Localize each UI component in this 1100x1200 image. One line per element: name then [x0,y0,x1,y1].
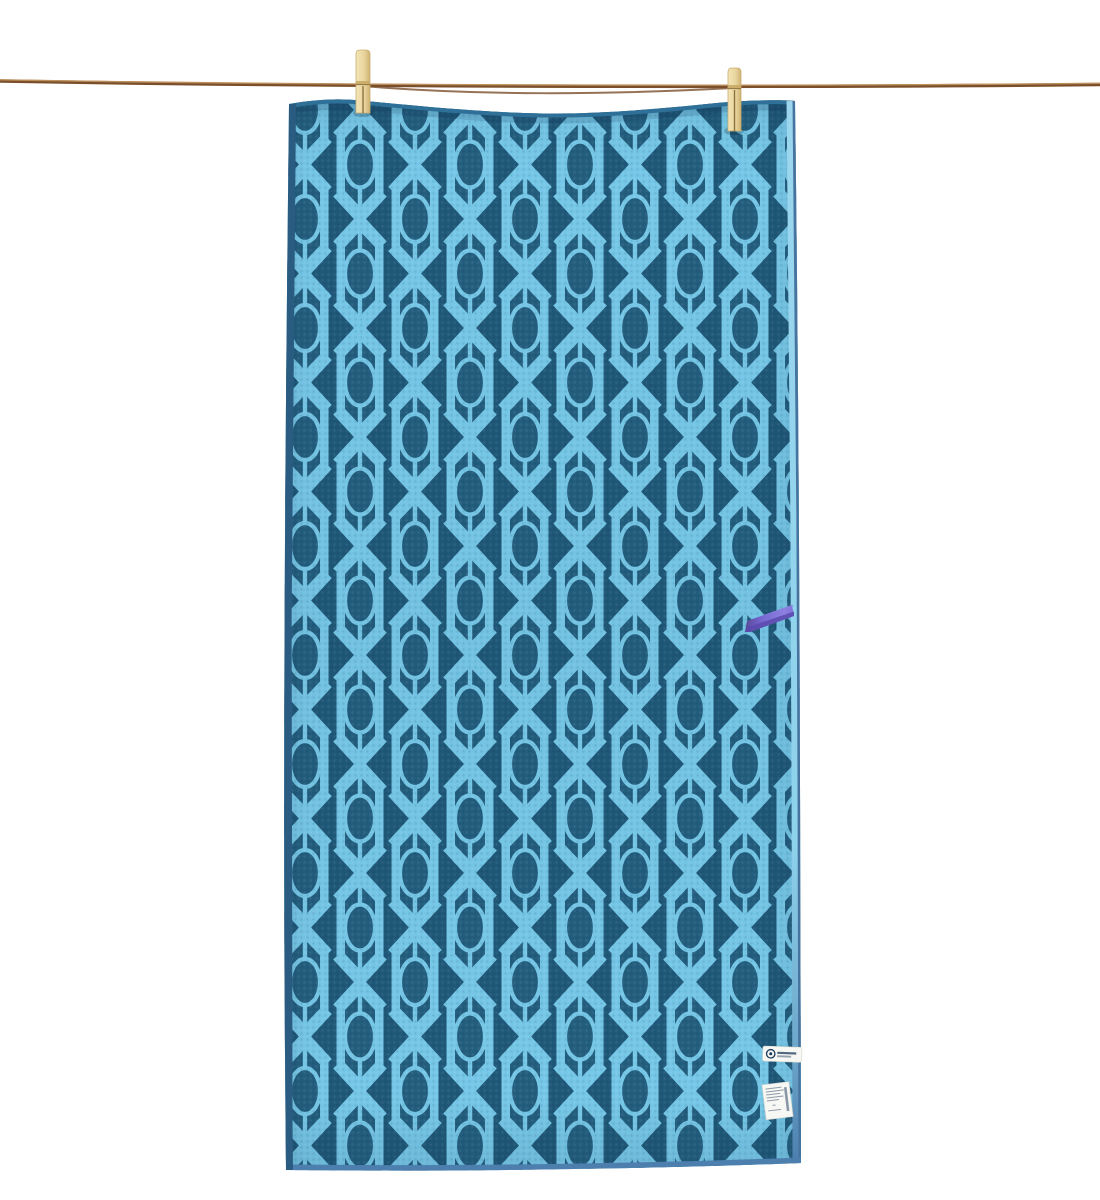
brand-tag [762,1046,801,1062]
care-label [762,1082,793,1120]
clothespin-right [728,68,741,131]
product-scene: Blue patterned quick-dry towel with a di… [0,0,1100,1200]
clothesline-rope [0,80,1100,93]
towel-surface-overlays [280,94,806,1178]
clothespin-left [356,50,370,113]
towel [280,94,806,1178]
hem-left [284,104,289,1170]
product-photo [0,0,1100,1200]
